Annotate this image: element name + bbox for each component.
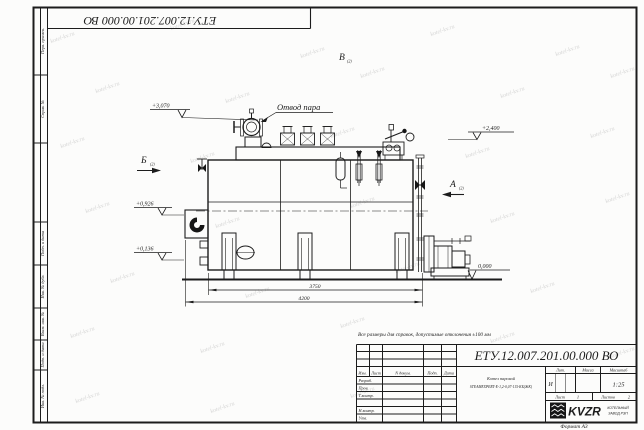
margin-label-invpodl: Инв. № подл. bbox=[40, 384, 45, 409]
dimension-3750: 3750 bbox=[209, 284, 423, 291]
elevation-0136: +0,136 bbox=[134, 247, 184, 261]
top-stamp: ЕТУ.12.007.201.00.000 ВО bbox=[48, 8, 311, 29]
safety-valve-boxes bbox=[281, 127, 335, 146]
row-utv: Утв. bbox=[359, 416, 368, 421]
lit-value: И bbox=[547, 382, 553, 388]
view-marker-a: А (2) bbox=[442, 180, 464, 197]
margin-label-invdubl: Инв. № дубл. bbox=[40, 275, 45, 300]
steam-outlet-valve bbox=[234, 109, 263, 147]
support-legs bbox=[222, 233, 409, 279]
scale-label: Масштаб bbox=[609, 368, 629, 373]
kvzr-logo-text: KVZR bbox=[568, 405, 601, 419]
view-b-ref: (2) bbox=[150, 162, 155, 167]
kvzr-logo-sub1: КОТЕЛЬНЫЙ bbox=[607, 406, 629, 410]
margin-label-perv: Перв. примен. bbox=[40, 28, 45, 55]
lit-label: Лит. bbox=[555, 368, 565, 373]
mass-label: Масса bbox=[581, 368, 593, 373]
top-stamp-number: ЕТУ.12.007.201.00.000 ВО bbox=[83, 14, 217, 28]
col-izm: Изм. bbox=[357, 371, 366, 376]
margin-label-sprav: Справ. № bbox=[40, 100, 45, 118]
sheets-label: Листов bbox=[600, 395, 615, 400]
dimension-4200: 4200 bbox=[186, 296, 423, 303]
product-name-line2: STEAMEXPERT-E-1,2-0,07-115-КБ(ЖК) bbox=[470, 385, 533, 390]
kvzr-logo: KVZR КОТЕЛЬНЫЙ ЗАВОД РЭП bbox=[550, 403, 629, 419]
margin-label-podp2: Подп. и дата bbox=[40, 342, 45, 369]
view-b-label: Б bbox=[140, 156, 147, 166]
dim-4200-value: 4200 bbox=[298, 296, 309, 302]
steam-outlet-label: Отвод пара bbox=[277, 102, 320, 112]
reference-note: Все размеры для справок, допустимые откл… bbox=[358, 331, 492, 338]
drawing-canvas: Перв. примен. Справ. № Подп. и дата Инв.… bbox=[0, 0, 644, 430]
doc-number: ЕТУ.12.007.201.00.000 ВО bbox=[474, 348, 619, 363]
view-marker-b: Б (2) bbox=[137, 156, 161, 173]
level-gauges bbox=[336, 150, 382, 188]
steam-drum-platform bbox=[236, 147, 400, 160]
elevation-0926-value: +0,926 bbox=[136, 202, 154, 208]
scale-value: 1:25 bbox=[613, 382, 626, 389]
sheets-value: 2 bbox=[628, 395, 631, 400]
manhole bbox=[236, 246, 255, 259]
margin-label-vzam: Взам. инв. № bbox=[40, 312, 45, 336]
elevation-2400: +2,400 bbox=[448, 125, 514, 140]
steam-outlet-callout: Отвод пара bbox=[261, 102, 334, 122]
row-razrab: Разраб. bbox=[358, 378, 372, 383]
view-marker-v: В (2) bbox=[339, 53, 352, 64]
elevation-0000-value: 0,000 bbox=[478, 264, 492, 270]
elevation-0926: +0,926 bbox=[134, 202, 184, 216]
kvzr-logo-sub2: ЗАВОД РЭП bbox=[608, 412, 628, 416]
margin-label-podp1: Подп. и дата bbox=[40, 230, 45, 257]
row-nkontr: Н.контр. bbox=[358, 408, 375, 413]
dim-3750-value: 3750 bbox=[308, 284, 320, 290]
elevation-3070: +3,070 bbox=[150, 104, 258, 121]
sheet-value: 1 bbox=[577, 395, 579, 400]
drawing-sheet: kotel-kv.rukotel-kv.rukotel-kv.rukotel-k… bbox=[0, 0, 644, 430]
elevation-3070-value: +3,070 bbox=[152, 104, 170, 110]
view-a-ref: (2) bbox=[459, 186, 464, 191]
col-ndocum: N докум. bbox=[394, 371, 410, 376]
elevation-0136-value: +0,136 bbox=[136, 247, 154, 253]
col-list: Лист bbox=[370, 371, 381, 376]
row-tkontr: Т.контр. bbox=[359, 393, 374, 398]
dimensions: 3750 4200 bbox=[186, 240, 423, 307]
left-wall-fittings bbox=[197, 159, 208, 265]
col-data: Дата bbox=[443, 371, 454, 376]
view-v-label: В bbox=[339, 53, 345, 63]
elevation-0000: 0,000 bbox=[468, 264, 510, 279]
feed-pump-unit bbox=[424, 236, 471, 280]
view-v-ref: (2) bbox=[347, 59, 352, 64]
sheet-label: Лист bbox=[554, 395, 565, 400]
lever-safety-valve bbox=[383, 125, 414, 161]
blowdown-valve-icon bbox=[415, 180, 420, 190]
product-name-line1: Котел паровой bbox=[486, 376, 516, 381]
col-podp: Подп. bbox=[426, 371, 437, 376]
elevation-2400-value: +2,400 bbox=[482, 125, 500, 132]
format-label: Формат А3 bbox=[560, 424, 588, 430]
view-a-label: А bbox=[449, 180, 456, 190]
row-prov: Пров. bbox=[358, 386, 369, 391]
burner bbox=[185, 210, 208, 238]
